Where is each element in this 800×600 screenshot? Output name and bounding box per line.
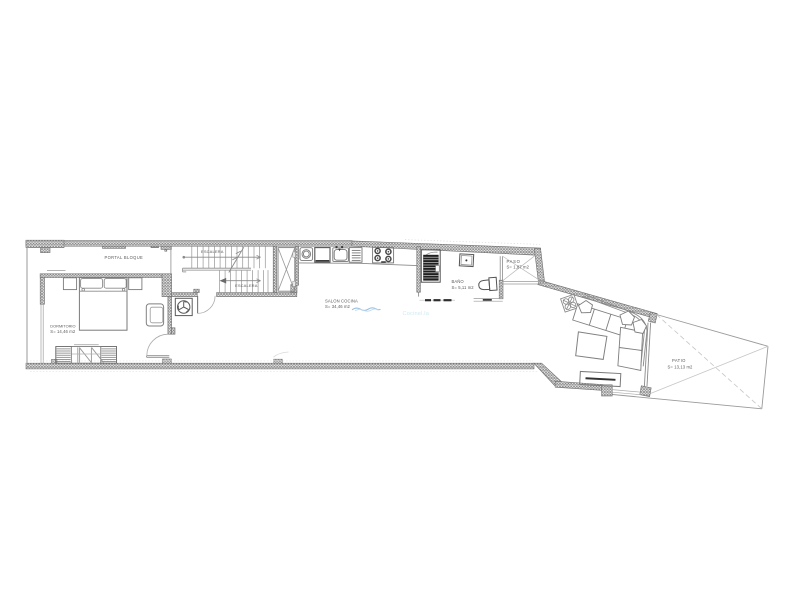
svg-text:S= 34,46 m2: S= 34,46 m2 [325, 304, 351, 309]
svg-text:ESCALERA: ESCALERA [201, 249, 224, 254]
svg-text:DORMITORIO: DORMITORIO [50, 324, 75, 329]
svg-text:S= 1,87 m2: S= 1,87 m2 [507, 265, 530, 270]
svg-text:S= 13,13 m2: S= 13,13 m2 [668, 364, 694, 369]
svg-text:SALON COCINA: SALON COCINA [325, 299, 358, 304]
svg-text:Cocinel.la: Cocinel.la [403, 311, 430, 317]
svg-text:PASO: PASO [507, 259, 521, 264]
svg-text:PATIO: PATIO [672, 358, 686, 363]
svg-text:PORTAL BLOQUE: PORTAL BLOQUE [105, 255, 144, 260]
svg-text:S= 14,46 m2: S= 14,46 m2 [50, 329, 76, 334]
svg-text:BAÑO: BAÑO [452, 279, 465, 284]
svg-text:ESCALERA: ESCALERA [235, 283, 258, 288]
svg-text:S= 5,11 m2: S= 5,11 m2 [452, 285, 475, 290]
